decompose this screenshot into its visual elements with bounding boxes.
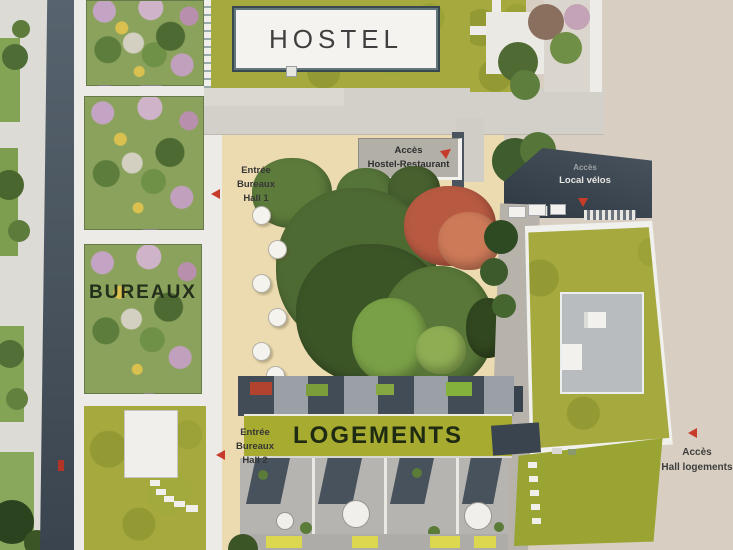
- bureaux-label: BUREAUX: [84, 282, 202, 304]
- rooftop-structure: [124, 410, 178, 478]
- terrace-table: [464, 502, 492, 530]
- parasol: [252, 342, 271, 361]
- terrace-plant: [300, 522, 312, 534]
- stepping-stone: [186, 505, 198, 512]
- awning-yellow: [266, 536, 302, 548]
- arrow-left-icon: [216, 450, 225, 460]
- hall-logements-line2: Hall logements: [652, 461, 733, 476]
- logements-upper-roofs: [238, 376, 514, 416]
- street-tree: [12, 20, 30, 38]
- rooftop-unit: [562, 344, 582, 370]
- lawn-furniture: [568, 449, 576, 455]
- stepping-stone: [530, 490, 539, 496]
- hall2-line1: Entrée: [222, 426, 288, 440]
- arrow-left-icon: [211, 189, 220, 199]
- stepping-stone: [532, 518, 541, 524]
- parasol: [252, 206, 271, 225]
- courtyard-garden: [84, 96, 204, 230]
- rooftop-box: [508, 206, 526, 218]
- street-tree: [8, 220, 30, 242]
- awning-yellow: [352, 536, 378, 548]
- logements-label: LOGEMENTS: [293, 422, 463, 450]
- tree: [564, 4, 590, 30]
- tree: [480, 258, 508, 286]
- tree-cluster: [416, 326, 466, 374]
- lawn-furniture: [552, 448, 562, 454]
- stepping-stone: [150, 480, 160, 486]
- hall1-line3: Hall 1: [218, 192, 294, 206]
- rooftop-box: [550, 204, 566, 215]
- arrow-down-icon: [578, 198, 588, 207]
- arrow-left-icon: [688, 428, 697, 438]
- terrace-plant: [412, 468, 422, 478]
- stepping-stone: [164, 496, 174, 502]
- velos-line1: Accès: [530, 162, 640, 174]
- hostel-name-plate: HOSTEL: [234, 8, 438, 70]
- roof-hatch: [286, 66, 297, 77]
- tree: [550, 32, 582, 64]
- tree: [492, 294, 516, 318]
- tree: [510, 70, 540, 100]
- parasol: [268, 308, 287, 327]
- hall1-line1: Entrée: [218, 164, 294, 178]
- skylight-green: [446, 382, 472, 396]
- terrace-table: [276, 512, 294, 530]
- street-tree: [2, 44, 28, 70]
- stepping-stone: [529, 476, 538, 482]
- hostel-roof-edge: [204, 0, 211, 88]
- stepping-stone: [174, 501, 185, 507]
- rooftop-box: [528, 204, 546, 216]
- east-roof-terrace: [560, 292, 644, 394]
- bike-racks: [584, 210, 636, 220]
- rooftop-unit: [584, 312, 606, 328]
- acces-hall-logements-label: Accès Hall logements: [652, 446, 733, 475]
- awning-yellow: [430, 536, 460, 548]
- hall2-line3: Hall 2: [222, 454, 288, 468]
- parked-car: [58, 460, 64, 471]
- stepping-stone: [528, 462, 537, 468]
- hall2-line2: Bureaux: [222, 440, 288, 454]
- parasol: [252, 274, 271, 293]
- entree-bureaux-hall1-label: Entrée Bureaux Hall 1: [218, 164, 294, 205]
- terrace-plant: [494, 522, 504, 532]
- bureaux-courtyard-garden: [84, 244, 202, 394]
- courtyard-garden: [86, 0, 204, 86]
- entree-bureaux-hall2-label: Entrée Bureaux Hall 2: [222, 426, 288, 467]
- hall-logements-line1: Accès: [652, 446, 733, 461]
- skylight-green: [376, 384, 394, 395]
- stepping-stone: [531, 504, 540, 510]
- stepping-stone: [156, 489, 166, 495]
- acces-local-velos-label: Accès Local vélos: [530, 162, 640, 187]
- building-edge: [590, 0, 602, 92]
- terrace-plant: [258, 470, 268, 480]
- skylight-green: [306, 384, 328, 396]
- terrace-table: [342, 500, 370, 528]
- tree: [484, 220, 518, 254]
- skylight-red: [250, 382, 272, 395]
- velos-line2: Local vélos: [530, 174, 640, 188]
- street-tree: [6, 388, 28, 410]
- awning-yellow: [474, 536, 496, 548]
- dark-roof-piece: [491, 422, 541, 455]
- hostel-label: HOSTEL: [269, 24, 403, 55]
- hall1-line2: Bureaux: [218, 178, 294, 192]
- hostel-lower-roof-step: [204, 88, 344, 106]
- parasol: [268, 240, 287, 259]
- site-plan: BUREAUX HOSTEL Accès Hostel-Restaurant: [0, 0, 733, 550]
